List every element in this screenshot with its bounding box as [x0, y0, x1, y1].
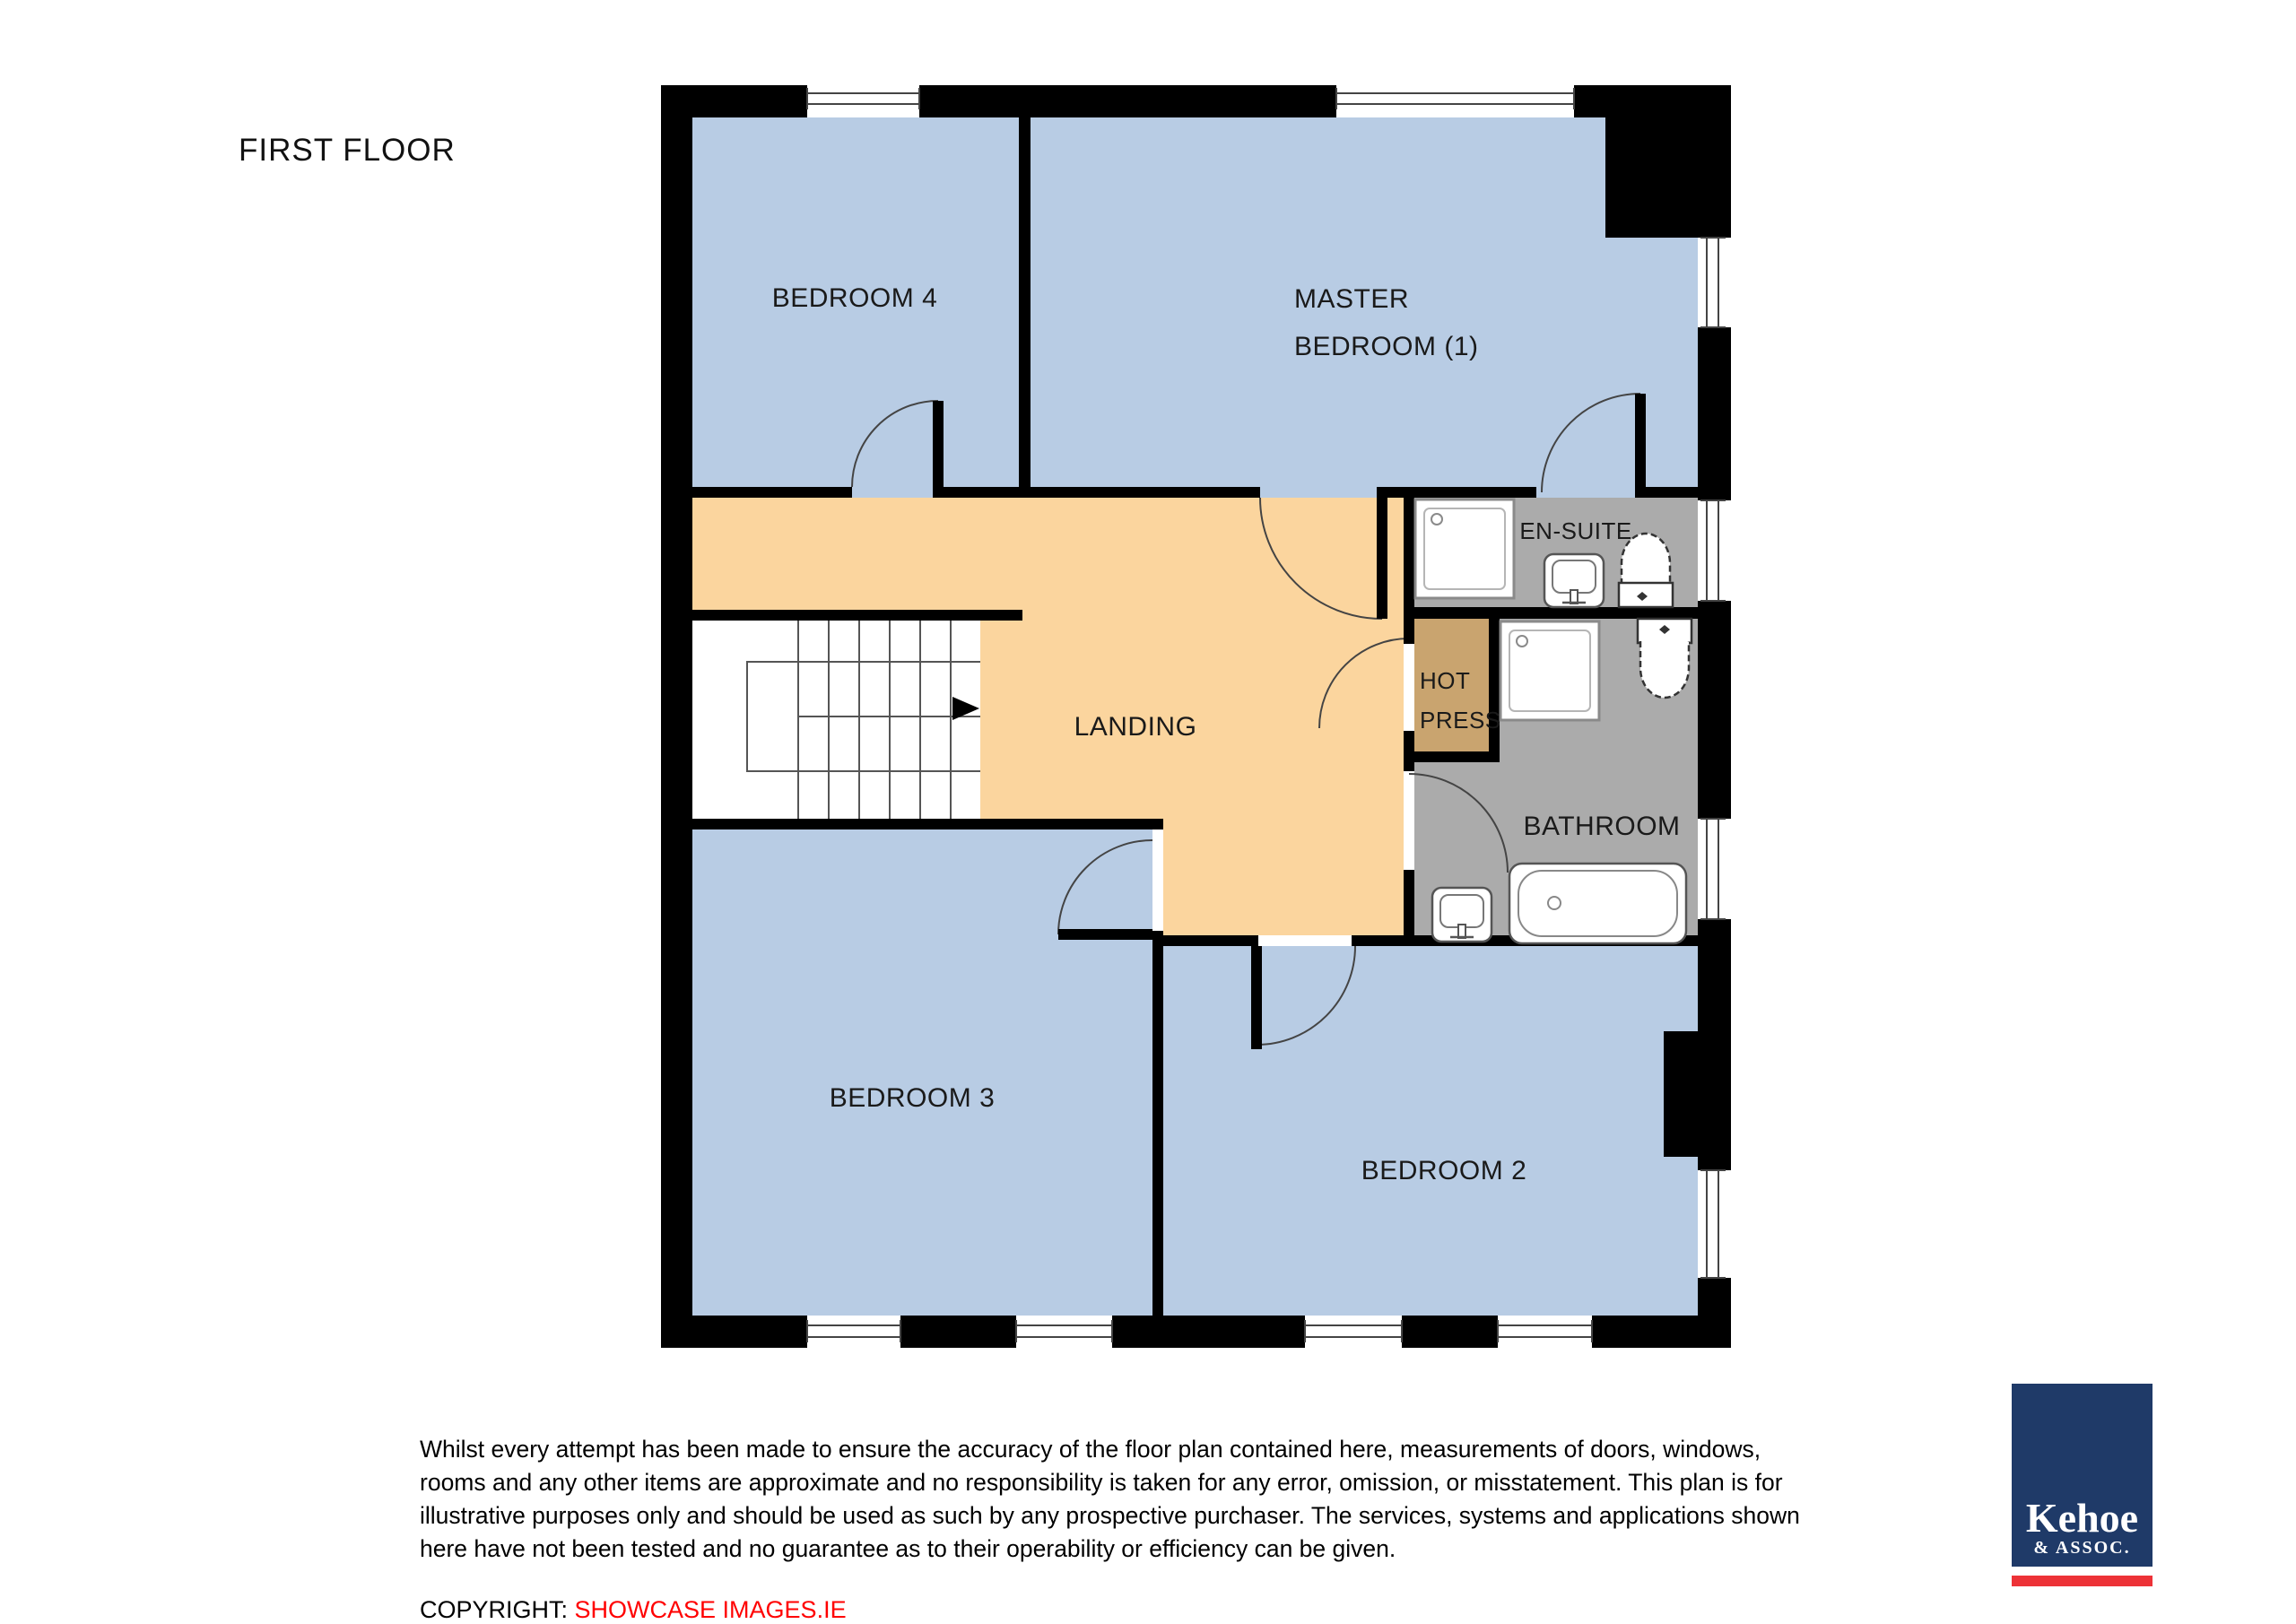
wall-right-pier	[1664, 1031, 1698, 1157]
wall-right-1	[1698, 85, 1731, 238]
copyright-label: COPYRIGHT:	[420, 1596, 575, 1623]
window-ensuite-right	[1698, 500, 1731, 601]
wall-top-2	[919, 85, 1336, 117]
label-ensuite: EN-SUITE	[1519, 517, 1631, 544]
window-bedroom4-top	[807, 85, 919, 117]
staircase	[691, 621, 980, 821]
wall-bedroom4-master	[1019, 117, 1031, 498]
bathroom-sink	[1432, 888, 1492, 942]
door-leaf-bedroom2	[1251, 946, 1262, 1049]
disclaimer-text: Whilst every attempt has been made to en…	[420, 1433, 1962, 1566]
disclaimer-line-4: here have not been tested and no guarant…	[420, 1533, 1962, 1566]
wall-mid-3	[1377, 487, 1536, 498]
label-bedroom4: BEDROOM 4	[772, 283, 938, 313]
logo-navy-box: Kehoe & ASSOC.	[2012, 1384, 2152, 1567]
label-hotpress-line2: PRESS	[1420, 707, 1501, 734]
window-bedroom2-right	[1698, 1170, 1731, 1278]
disclaimer-line-1: Whilst every attempt has been made to en…	[420, 1433, 1962, 1466]
wall-bedroom2-top-1	[1163, 935, 1258, 946]
window-bedroom2-bottom-2	[1498, 1316, 1592, 1348]
logo-brand-name: Kehoe	[2026, 1500, 2138, 1536]
wall-bedroom3-top	[661, 819, 1163, 829]
window-bedroom3-bottom-2	[1016, 1316, 1112, 1348]
wall-wetzone-left-1	[1404, 487, 1414, 644]
floor-plan: BEDROOM 4 MASTER BEDROOM (1) EN-SUITE HO…	[0, 0, 2296, 1623]
label-landing: LANDING	[1074, 712, 1197, 742]
room-bedroom3-floor	[691, 829, 1152, 1316]
wall-left	[661, 85, 692, 1348]
window-bathroom-right	[1698, 819, 1731, 919]
doorway-bedroom3-opening	[1152, 829, 1163, 931]
wall-bottom-2	[900, 1316, 1016, 1348]
wall-ensuite-bathroom	[1404, 607, 1698, 619]
label-bedroom3: BEDROOM 3	[830, 1083, 996, 1113]
ensuite-shower-tray	[1415, 499, 1514, 598]
wall-bottom-3	[1112, 1316, 1305, 1348]
door-leaf-master	[1377, 498, 1387, 619]
logo-red-bar	[2012, 1576, 2152, 1586]
door-leaf-bedroom4	[933, 401, 944, 487]
copyright-source: SHOWCASE IMAGES.IE	[575, 1596, 847, 1623]
wall-mid-1	[661, 487, 852, 498]
label-master-line1: MASTER	[1294, 284, 1409, 314]
label-master-line2: BEDROOM (1)	[1294, 332, 1479, 361]
label-hotpress-line1: HOT	[1420, 667, 1470, 694]
wall-right-4	[1698, 919, 1731, 1170]
wall-right-2	[1698, 327, 1731, 500]
window-bedroom3-bottom-1	[807, 1316, 900, 1348]
wall-mid-4	[1635, 487, 1698, 498]
wall-wetzone-left-2	[1404, 731, 1414, 771]
room-bedroom2-floor	[1163, 946, 1698, 1316]
wall-hotpress-right	[1489, 619, 1500, 762]
wall-bottom-4	[1402, 1316, 1498, 1348]
wall-right-3	[1698, 601, 1731, 819]
wall-mid-2	[933, 487, 1260, 498]
disclaimer-line-3: illustrative purposes only and should be…	[420, 1499, 1962, 1533]
bathroom-shower-tray	[1500, 621, 1599, 720]
wall-bottom-1	[661, 1316, 807, 1348]
label-bathroom: BATHROOM	[1523, 812, 1680, 841]
wall-stairs-top	[661, 610, 1022, 621]
wall-wetzone-left-3	[1404, 870, 1414, 935]
window-master-right	[1698, 238, 1731, 327]
door-leaf-ensuite	[1635, 394, 1646, 487]
copyright-line: COPYRIGHT: SHOWCASE IMAGES.IE	[420, 1596, 847, 1624]
wall-bedroom3-bedroom2	[1152, 931, 1163, 1316]
bathtub	[1509, 864, 1686, 943]
door-leaf-bedroom3	[1058, 929, 1152, 940]
disclaimer-line-2: rooms and any other items are approximat…	[420, 1466, 1962, 1499]
ensuite-toilet	[1619, 534, 1673, 607]
label-bedroom2: BEDROOM 2	[1361, 1156, 1527, 1185]
logo-brand-suffix: & ASSOC.	[2033, 1536, 2130, 1559]
window-bedroom2-bottom-1	[1305, 1316, 1402, 1348]
agency-logo: Kehoe & ASSOC.	[2012, 1384, 2152, 1585]
wall-hotpress-bottom	[1404, 751, 1500, 762]
window-master-top	[1336, 85, 1574, 117]
wall-right-5	[1698, 1278, 1731, 1348]
ensuite-sink	[1544, 554, 1604, 607]
bathroom-toilet	[1638, 619, 1692, 698]
